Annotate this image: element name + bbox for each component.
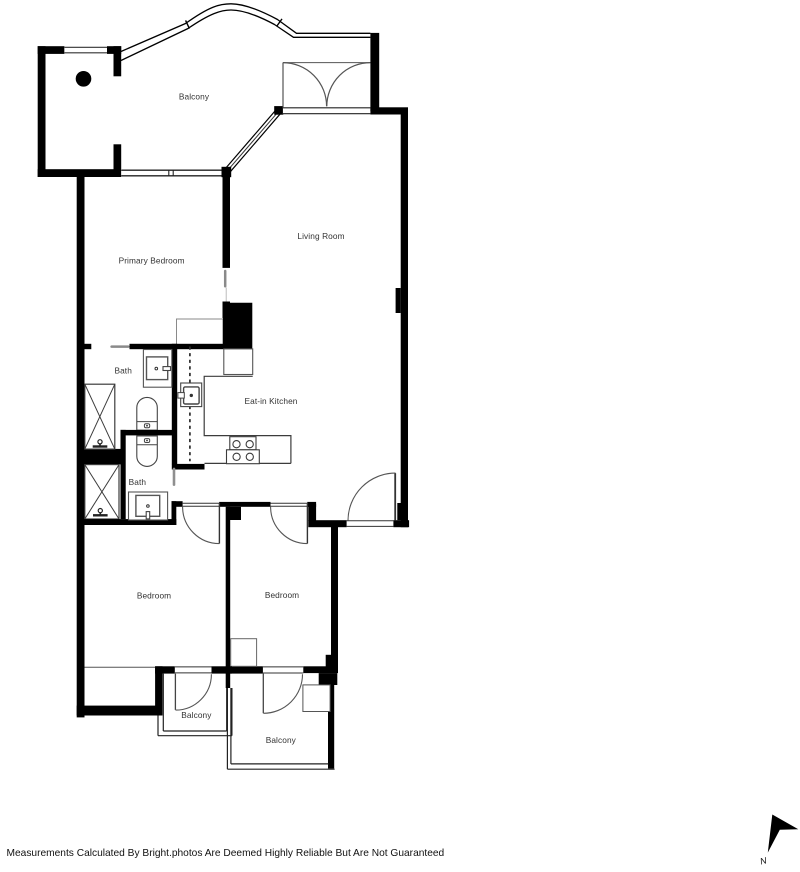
- svg-text:Eat-in Kitchen: Eat-in Kitchen: [244, 396, 297, 406]
- svg-text:Bath: Bath: [129, 477, 147, 487]
- svg-text:Living Room: Living Room: [297, 231, 344, 241]
- svg-text:Balcony: Balcony: [181, 710, 212, 720]
- svg-text:Balcony: Balcony: [179, 92, 210, 102]
- svg-text:Bedroom: Bedroom: [265, 590, 299, 600]
- svg-text:Balcony: Balcony: [266, 735, 297, 745]
- svg-text:Bath: Bath: [114, 366, 132, 376]
- svg-text:Bedroom: Bedroom: [137, 591, 171, 601]
- svg-text:Primary Bedroom: Primary Bedroom: [119, 255, 185, 265]
- svg-text:Measurements Calculated By Bri: Measurements Calculated By Bright.photos…: [7, 848, 445, 859]
